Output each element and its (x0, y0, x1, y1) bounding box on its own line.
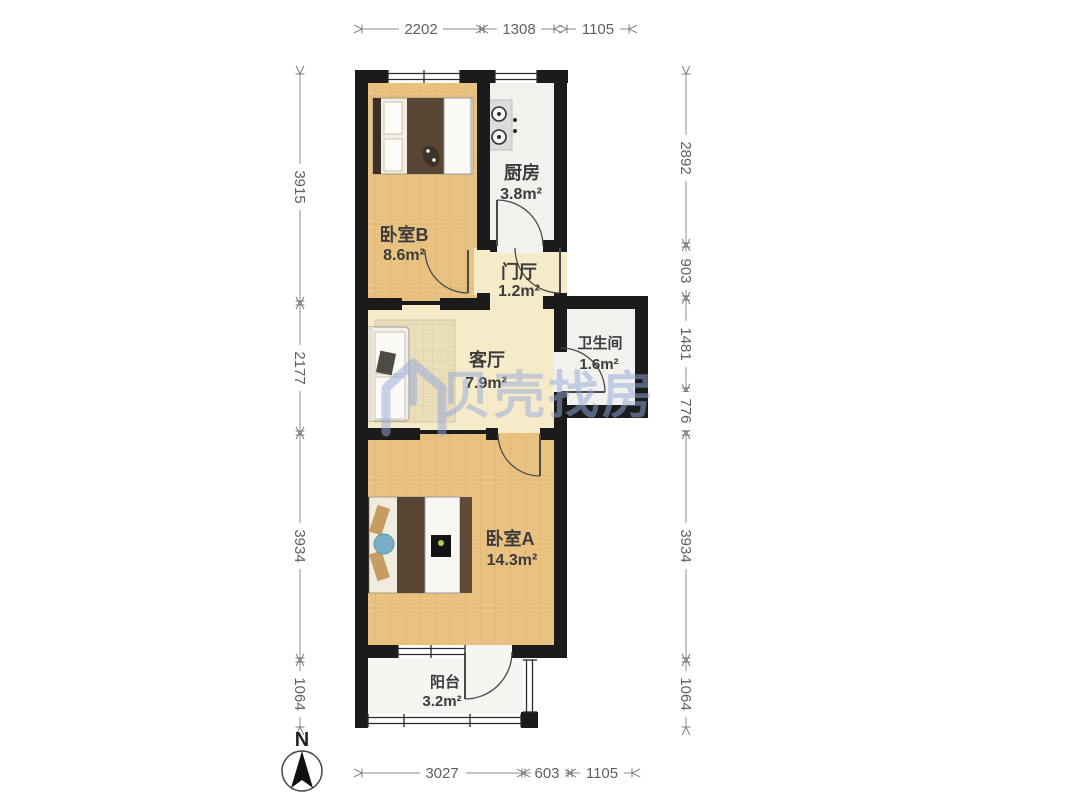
wall-segment (355, 658, 368, 728)
floor-kitchen-door-gap (496, 240, 543, 253)
north-label: N (295, 729, 309, 751)
dim-left-3: 3934 (291, 529, 308, 562)
window-bedroom-b (388, 70, 460, 83)
wall-segment (554, 70, 567, 248)
wall-segment (543, 296, 648, 309)
bed-b-headboard (373, 98, 381, 174)
wall-segment (540, 428, 567, 440)
label-kitchen-name: 厨房 (504, 162, 540, 183)
bed-b-pillow (384, 139, 402, 171)
window-balcony-side (523, 660, 537, 712)
kitchen-stove (487, 100, 517, 150)
wall-segment (521, 712, 538, 728)
label-balcony-area: 3.2m² (422, 693, 461, 710)
label-hall-area: 1.2m² (498, 283, 540, 300)
window-kitchen (495, 70, 537, 83)
watermark-text: 贝壳找房 (440, 367, 656, 424)
bed-a-blanket (397, 497, 425, 593)
label-bedroom-a-name: 卧室A (486, 528, 535, 549)
wall-segment (355, 645, 398, 658)
wall-segment (486, 428, 498, 440)
wall-segment (420, 430, 486, 434)
dim-right-4: 776 (677, 398, 694, 423)
wall-segment (490, 240, 497, 252)
north-indicator: N (282, 729, 322, 791)
north-arrow-icon (291, 751, 313, 788)
floor-plan-page: 卧室B 8.6m² 厨房 3.8m² 门厅 1.2m² 客厅 7.9m² 卫生间… (0, 0, 1080, 804)
dim-right-6: 1064 (677, 677, 694, 710)
wall-segment (477, 70, 490, 250)
window-bedroom-a (398, 645, 465, 658)
label-kitchen-area: 3.8m² (500, 186, 542, 203)
dim-left-2: 2177 (291, 351, 308, 384)
bed-bedroom-a (362, 497, 472, 593)
label-bedroom-a-area: 14.3m² (487, 552, 538, 569)
bed-a-round-pillow (374, 534, 394, 554)
dim-bottom-2: 603 (534, 765, 559, 782)
label-hall-name: 门厅 (501, 261, 537, 282)
wall-segment (543, 240, 567, 252)
dim-top-2: 1308 (502, 21, 535, 38)
wall-segment (512, 645, 567, 658)
dim-top-3: 1105 (582, 21, 614, 38)
dim-bottom-3: 1105 (586, 765, 618, 782)
dim-right-1: 2892 (677, 141, 694, 174)
floor-hall-door-gap (474, 248, 490, 295)
bed-bedroom-b (373, 98, 473, 174)
dim-left-1: 3915 (291, 170, 308, 203)
wall-segment (440, 298, 490, 310)
label-balcony-name: 阳台 (430, 673, 460, 691)
desk-bedroom-a (460, 497, 472, 593)
wall-segment (402, 301, 440, 305)
label-bedroom-b-area: 8.6m² (383, 247, 425, 264)
dim-right-2: 903 (677, 258, 694, 283)
dim-left-4: 1064 (291, 677, 308, 710)
floor-balcony-door-gap (464, 645, 513, 659)
wall-segment (355, 70, 368, 658)
label-bedroom-b-name: 卧室B (380, 224, 429, 245)
window-balcony-front (368, 714, 521, 727)
dim-right-3: 1481 (677, 327, 694, 360)
wall-segment (355, 298, 402, 310)
label-bathroom-name: 卫生间 (577, 334, 622, 352)
bed-b-pillow (384, 102, 402, 134)
dim-bottom-1: 3027 (425, 765, 458, 782)
dim-top-1: 2202 (404, 21, 437, 38)
wardrobe-bedroom-b (444, 98, 471, 174)
dim-right-5: 3934 (677, 529, 694, 562)
